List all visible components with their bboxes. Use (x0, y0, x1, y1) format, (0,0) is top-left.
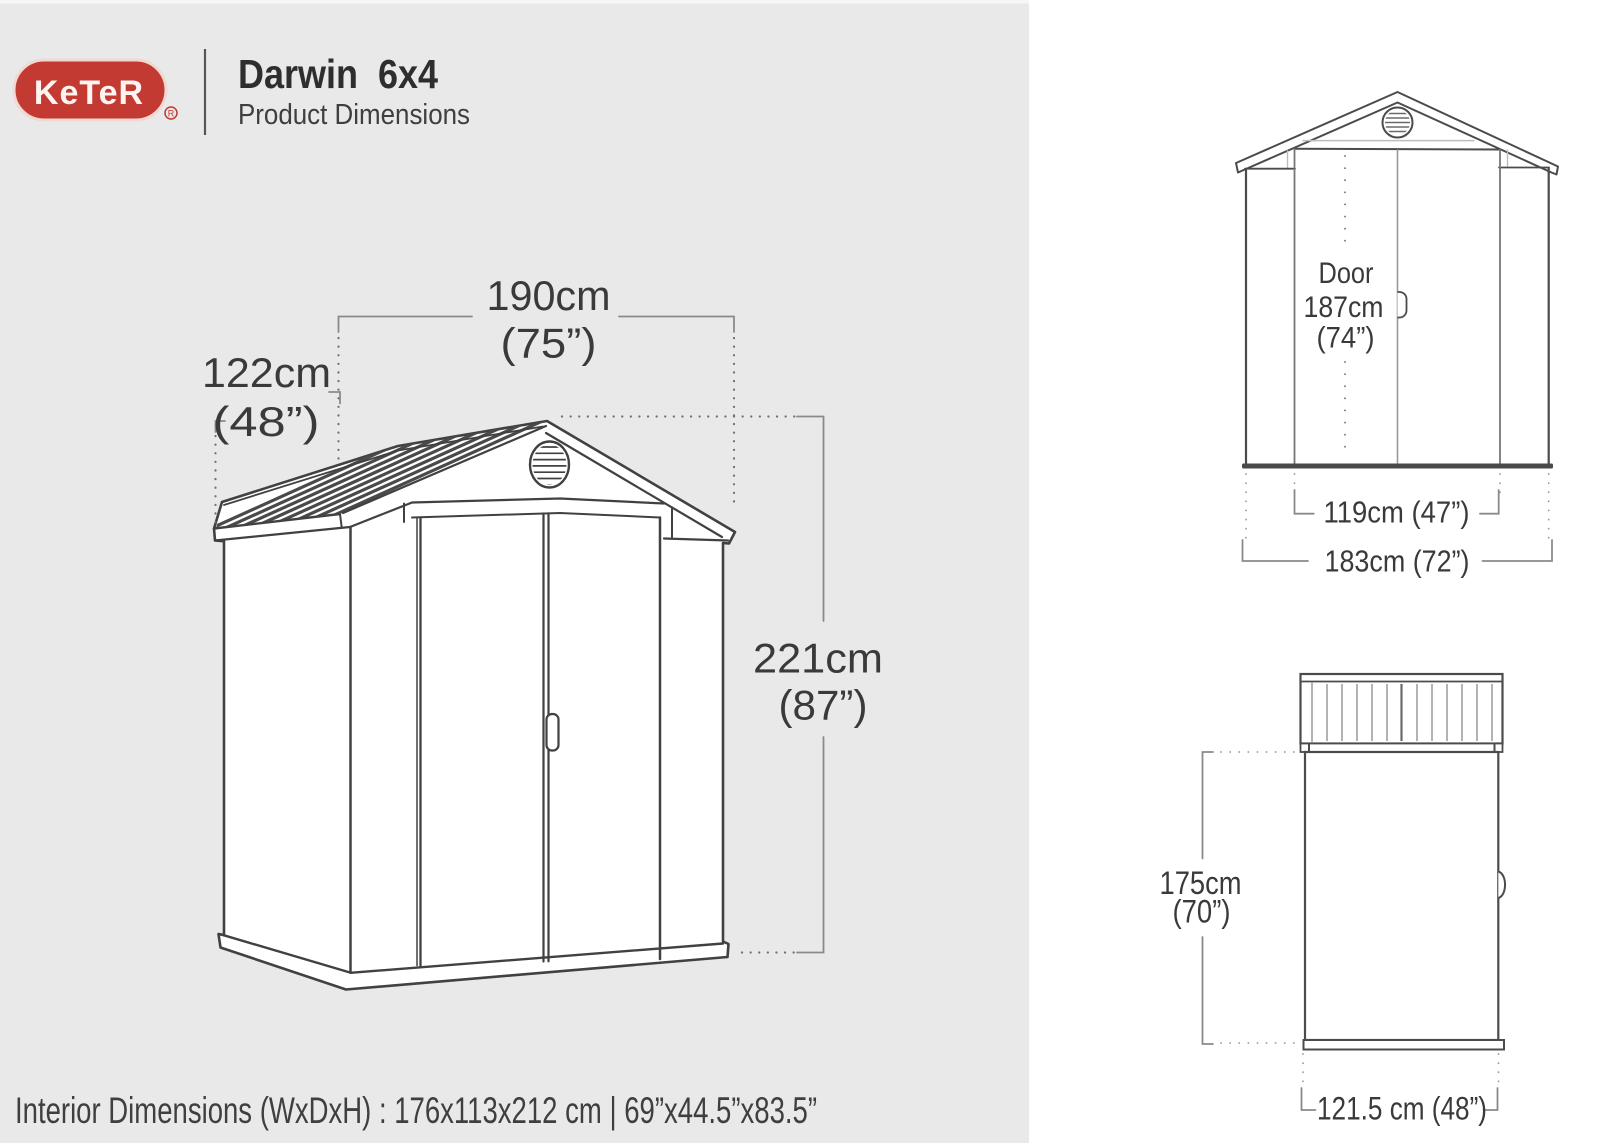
svg-text:183cm (72”): 183cm (72”) (1325, 544, 1470, 579)
svg-text:119cm (47”): 119cm (47”) (1324, 495, 1470, 530)
svg-text:190cm: 190cm (487, 272, 611, 319)
svg-text:Interior Dimensions (WxDxH) :: Interior Dimensions (WxDxH) : 176x113x21… (15, 1090, 817, 1131)
svg-text:R: R (168, 109, 175, 119)
svg-text:Product Dimensions: Product Dimensions (238, 99, 470, 131)
svg-text:Darwin 6x4: Darwin 6x4 (238, 51, 438, 97)
svg-text:KeTeR: KeTeR (34, 74, 144, 112)
svg-text:187cm: 187cm (1304, 291, 1384, 324)
svg-text:(87”): (87”) (779, 682, 868, 729)
svg-text:122cm: 122cm (202, 349, 331, 396)
svg-text:221cm: 221cm (753, 635, 883, 682)
svg-text:(70”): (70”) (1173, 894, 1231, 930)
svg-text:(75”): (75”) (501, 320, 597, 367)
svg-text:(48”): (48”) (213, 398, 320, 445)
svg-text:121.5 cm (48”): 121.5 cm (48”) (1317, 1091, 1487, 1127)
svg-text:(74”): (74”) (1317, 322, 1375, 355)
svg-text:Door: Door (1319, 257, 1374, 290)
